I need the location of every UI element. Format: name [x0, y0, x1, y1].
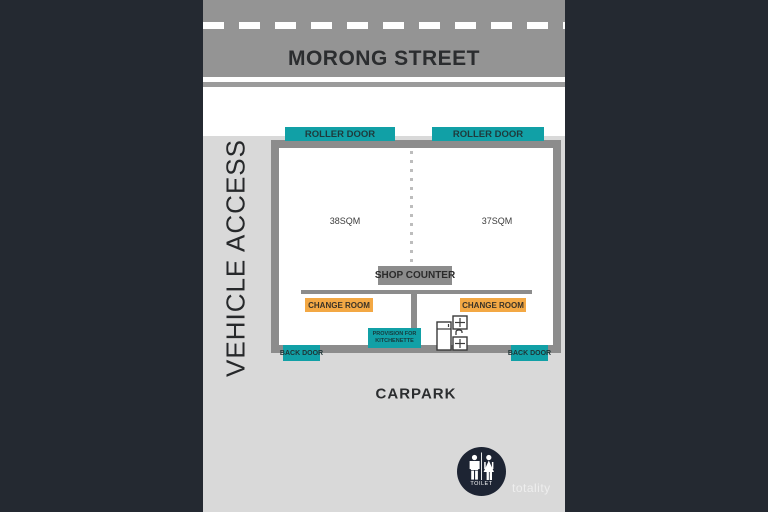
- change-room-left-label: CHANGE ROOM: [308, 301, 370, 310]
- kitchenette-fixtures-icon: [436, 315, 469, 352]
- tenancy-divider-dotted-line: [410, 151, 413, 267]
- room-right-area-label: 37SQM: [482, 216, 513, 226]
- roller-door-left-label: ROLLER DOOR: [305, 129, 375, 140]
- back-door-left: BACK DOOR: [283, 345, 320, 361]
- room-left-area-label: 38SQM: [330, 216, 361, 226]
- back-door-left-label: BACK DOOR: [280, 350, 323, 357]
- change-room-right: CHANGE ROOM: [460, 298, 526, 312]
- roller-door-left: ROLLER DOOR: [285, 127, 395, 141]
- road-centerline-dashes: [203, 22, 565, 29]
- toilet-figures-icon: [457, 447, 506, 483]
- right-dark-panel: [565, 0, 768, 512]
- kitchenette-provision: PROVISION FOR KITCHENETTE: [368, 328, 421, 348]
- back-door-right: BACK DOOR: [511, 345, 548, 361]
- left-dark-panel: [0, 0, 203, 512]
- change-room-right-label: CHANGE ROOM: [462, 301, 524, 310]
- street-road: MORONG STREET: [203, 0, 565, 77]
- roller-door-right-label: ROLLER DOOR: [453, 129, 523, 140]
- toilet-sign-icon: TOILET: [457, 447, 506, 496]
- street-name-label: MORONG STREET: [288, 47, 480, 77]
- kitchenette-label-line2: KITCHENETTE: [375, 338, 414, 345]
- roller-door-right: ROLLER DOOR: [432, 127, 544, 141]
- vehicle-access-label: VEHICLE ACCESS: [221, 139, 252, 377]
- back-door-right-label: BACK DOOR: [508, 350, 551, 357]
- shop-counter-label: SHOP COUNTER: [375, 270, 455, 281]
- shop-counter: SHOP COUNTER: [378, 266, 452, 285]
- watermark-text: totality: [512, 481, 551, 495]
- carpark-label: CARPARK: [376, 386, 457, 403]
- toilet-label: TOILET: [470, 481, 492, 487]
- change-room-left: CHANGE ROOM: [305, 298, 373, 312]
- kitchenette-label-line1: PROVISION FOR: [373, 331, 417, 338]
